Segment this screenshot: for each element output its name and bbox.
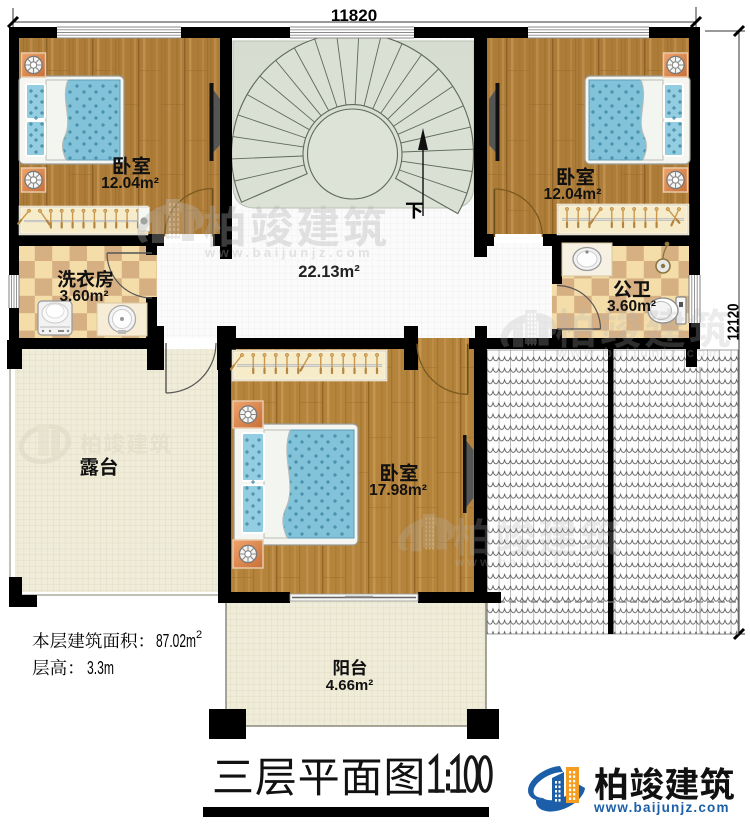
svg-text:2: 2 <box>196 629 202 641</box>
svg-text:11820: 11820 <box>331 6 377 25</box>
svg-text:3.60m²: 3.60m² <box>607 298 656 315</box>
svg-text:3.60m²: 3.60m² <box>59 288 108 305</box>
svg-text:3.3m: 3.3m <box>87 658 114 678</box>
svg-text:12.04m²: 12.04m² <box>544 186 602 203</box>
svg-text:www.baijunjz.com: www.baijunjz.com <box>556 345 724 360</box>
svg-text:www.baijunjz.com: www.baijunjz.com <box>454 555 610 569</box>
svg-text:22.13m²: 22.13m² <box>298 263 360 281</box>
svg-text:www.baijunjz.com: www.baijunjz.com <box>204 245 373 260</box>
svg-text:12120: 12120 <box>726 303 743 340</box>
svg-text:www.baijunjz.com: www.baijunjz.com <box>593 800 730 815</box>
svg-text:12.04m²: 12.04m² <box>101 175 159 192</box>
svg-text:4.66m²: 4.66m² <box>326 677 374 694</box>
svg-text:87.02m: 87.02m <box>156 631 196 651</box>
svg-text:17.98m²: 17.98m² <box>369 482 427 499</box>
